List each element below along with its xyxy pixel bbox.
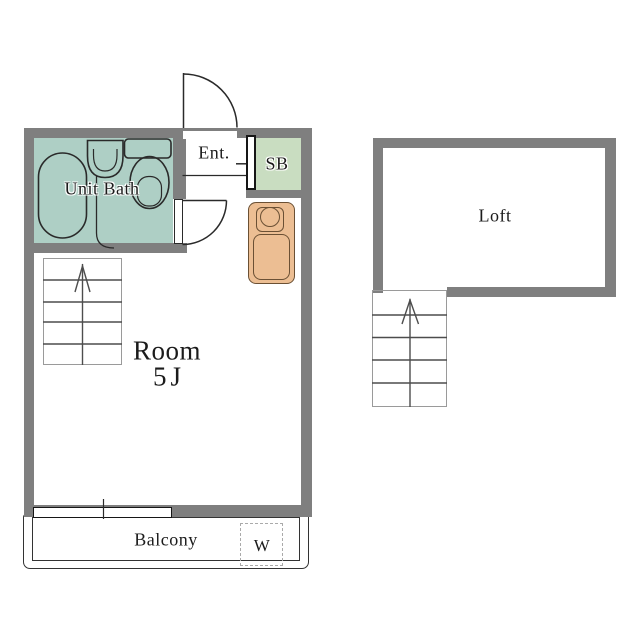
kitchenette-sink-bowl — [260, 207, 280, 227]
loft-wall-bottom — [447, 287, 616, 297]
balcony-label: Balcony — [134, 530, 198, 551]
loft-wall-top — [373, 138, 616, 148]
entrance-door-swing-arc — [184, 74, 238, 128]
entrance-label: Ent. — [198, 143, 230, 164]
kitchenette-counter — [253, 234, 290, 281]
loft-stairs — [372, 290, 447, 407]
bath-wall-right — [173, 138, 186, 199]
bath-doorway-opening — [174, 199, 183, 244]
loft-wall-right — [605, 138, 616, 297]
floor-plan: Unit Bath Ent. SB Room 5J Balcony W Loft — [0, 0, 640, 640]
loft-label: Loft — [479, 206, 512, 227]
main-stairs — [43, 258, 122, 365]
shoe-box-door — [246, 135, 256, 190]
main-wall-top — [24, 128, 312, 138]
main-wall-left — [24, 128, 34, 517]
bath-wall-bottom — [24, 243, 187, 253]
main-wall-right — [301, 128, 312, 517]
window — [33, 507, 172, 518]
unit-bath-label: Unit Bath — [65, 179, 140, 200]
shoe-box-label: SB — [265, 154, 288, 175]
shoe-box-wall-bottom — [246, 190, 312, 198]
washer-label: W — [254, 536, 271, 556]
bath-door-swing-arc — [183, 201, 227, 245]
entrance-doorway-opening — [183, 131, 237, 139]
loft-wall-left — [373, 138, 383, 293]
room-size-label: 5J — [153, 362, 185, 393]
